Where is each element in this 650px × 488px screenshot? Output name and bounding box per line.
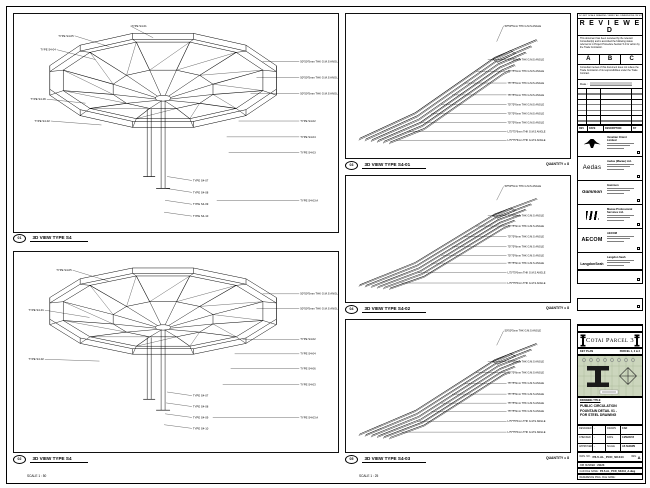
description-col: DESCRIPTION <box>604 126 632 131</box>
consultant-row: AedasAedas (Macau) Ltd. <box>578 157 642 181</box>
svg-text:TYPE S4-09: TYPE S4-09 <box>193 416 209 420</box>
view-number-bubble: 01 <box>13 234 26 243</box>
consultant-info: Aedas (Macau) Ltd. <box>607 160 636 170</box>
svg-text:TYPE S4-07: TYPE S4-07 <box>193 178 209 182</box>
svg-text:L75*75*6mm THK G.M.S ANGLE: L75*75*6mm THK G.M.S ANGLE <box>508 129 546 133</box>
consultant-row: GammonGammon <box>578 181 642 205</box>
view-number-bubble: 03 <box>345 161 358 170</box>
svg-text:TYPE S4-03 A: TYPE S4-03 A <box>300 198 318 202</box>
mps-logo-icon <box>579 207 605 224</box>
revision-table-header: REV DATE DESCRIPTION BY <box>577 125 643 132</box>
svg-text:TYPE S4-09: TYPE S4-09 <box>193 202 209 206</box>
consultant-name: Venetian Orient Limited <box>607 136 636 142</box>
svg-text:75*75*6mm THK G.M.S ANGLE: 75*75*6mm THK G.M.S ANGLE <box>508 361 545 364</box>
svg-text:TYPE S4-06: TYPE S4-06 <box>300 366 316 370</box>
consultant-row: Venetian Orient Limited <box>578 133 642 157</box>
approved-value: - <box>593 444 606 452</box>
job-number-value: 21123 <box>597 464 604 467</box>
venetian-logo-icon <box>579 135 605 152</box>
review-stamp: DO NOT SCALE DRAWING. VERIFY ALL DIMENSI… <box>577 13 643 125</box>
tube-structure <box>359 198 537 289</box>
tube-structure <box>359 344 537 440</box>
svg-text:TYPE S4-03: TYPE S4-03 <box>300 383 316 387</box>
consultant-name: Macau Professional Services Ltd. <box>607 208 636 214</box>
svg-text:TYPE S4-07: TYPE S4-07 <box>193 394 209 398</box>
view-scale: SCALE 1 : 25 <box>359 474 571 478</box>
key-plan-map <box>577 355 643 397</box>
scale-label: SCALE <box>606 444 621 452</box>
view-title: 3D VIEW TYPE S4-03 <box>362 455 426 463</box>
svg-text:75*75*6mm THK G.M.S ANGLE: 75*75*6mm THK G.M.S ANGLE <box>508 112 545 116</box>
svg-text:75*75*6mm THK G.M.S ANGLE: 75*75*6mm THK G.M.S ANGLE <box>508 382 545 385</box>
address-line <box>607 262 630 263</box>
svg-text:TYPE S4-03 A: TYPE S4-03 A <box>300 416 318 420</box>
project-title-band: PROJECT TITLE <box>577 325 643 332</box>
address-line <box>607 236 634 237</box>
svg-text:TYPE S4-02: TYPE S4-02 <box>300 337 316 341</box>
svg-text:75*75*6mm THK G.M.S ANGLE: 75*75*6mm THK G.M.S ANGLE <box>508 57 545 61</box>
address-line <box>607 215 634 216</box>
key-plan-label: KEY PLAN <box>580 350 593 353</box>
status-option-b: B <box>600 55 622 64</box>
project-name: Cotai Parcel 3 <box>586 337 634 344</box>
svg-text:75*75*6mm THK G.M.S ANGLE: 75*75*6mm THK G.M.S ANGLE <box>508 69 545 73</box>
svg-text:L75*75*6mm THK G.M.S ANGLE: L75*75*6mm THK G.M.S ANGLE <box>508 431 546 434</box>
status-checkbox <box>637 175 641 179</box>
rev-col: REV <box>578 126 588 131</box>
svg-text:TYPE S4-10: TYPE S4-10 <box>193 214 209 218</box>
status-checkbox <box>637 151 641 155</box>
consultant-info: Langdon Seah <box>607 256 636 266</box>
consultant-row: Macau Professional Services Ltd. <box>578 205 642 229</box>
consultant-row: LangdonSeahLangdon Seah <box>578 253 642 270</box>
view-panel-mid-bottom: 50*50*5mm THK G.M.S ANGLE75*75*6mm THK G… <box>345 319 571 453</box>
date-value: 14/MAR/15 <box>621 435 642 444</box>
view-number-bubble: 04 <box>345 305 358 314</box>
quantity-note: QUANTITY = 8 <box>546 162 569 166</box>
view-label-mid-middle: 04 3D VIEW TYPE S4-02 QUANTITY = 8 SCALE… <box>345 305 571 319</box>
consultant-row: AECOMAECOM <box>578 229 642 253</box>
view-panel-left-top: TYPE S4-01TYPE S4-05TYPE S4-04TYPE S4-06… <box>13 13 339 233</box>
key-plan-header: KEY PLAN PARCEL 1, 2 & 3 <box>577 348 643 355</box>
stamp-disclaimer-text: Consultant review of this document does … <box>578 65 642 80</box>
date-fill-line <box>590 82 632 86</box>
drawing-info-table: DESIGNED - DRAWN CAD CHECKED - DATE 14/M… <box>577 425 643 452</box>
svg-text:TYPE S4-01: TYPE S4-01 <box>131 24 147 28</box>
angle-assembly-drawing: 50*50*5mm THK G.M.S ANGLE75*75*6mm THK G… <box>346 320 570 452</box>
drawing-number-row: DWG. NO. P3-5-AL_PCD_SK444 REV. A <box>577 452 643 462</box>
consultant-row-empty <box>577 270 643 284</box>
checked-label: CHECKED <box>578 435 593 444</box>
dwg-no-value: P3-5-AL_PCD_SK444 <box>592 455 631 459</box>
sheet-border: TYPE S4-01TYPE S4-05TYPE S4-04TYPE S4-06… <box>6 6 646 484</box>
consultant-info: Venetian Orient Limited <box>607 136 636 149</box>
address-line <box>607 190 630 191</box>
cad-file-label: CAD FILE NAME : <box>580 470 600 473</box>
by-col: BY <box>632 126 642 131</box>
annotation-layer: 50*50*5mm THK G.M.S ANGLE75*75*6mm THK G… <box>397 24 546 142</box>
status-checkbox <box>637 305 641 309</box>
status-checkbox <box>637 278 641 282</box>
address-line <box>607 220 624 221</box>
address-line <box>607 169 624 170</box>
quantity-note: QUANTITY = 8 <box>546 456 569 460</box>
address-line <box>607 145 630 146</box>
approved-label: APPROVED <box>578 444 593 452</box>
cad-file-value: P3-5-AL_PCD_SK444_A.dwg <box>600 470 635 473</box>
drawn-value: CAD <box>621 426 642 435</box>
svg-text:TYPE S4-04: TYPE S4-04 <box>300 135 316 139</box>
svg-text:75*75*6mm THK G.M.S ANGLE: 75*75*6mm THK G.M.S ANGLE <box>508 225 545 228</box>
consultant-name: AECOM <box>607 232 636 235</box>
view-number-bubble: 05 <box>345 455 358 464</box>
svg-text:TYPE S4-03: TYPE S4-03 <box>300 151 316 155</box>
view-title: 3D VIEW TYPE S4-01 <box>362 161 426 169</box>
svg-text:75*75*6mm THK G.M.S ANGLE: 75*75*6mm THK G.M.S ANGLE <box>508 371 545 374</box>
date-col: DATE <box>588 126 604 131</box>
svg-text:75*75*6mm THK G.M.S ANGLE: 75*75*6mm THK G.M.S ANGLE <box>508 215 545 218</box>
address-line <box>607 164 634 165</box>
angle-assembly-drawing: 50*50*5mm THK G.M.S ANGLE75*75*6mm THK G… <box>346 176 570 302</box>
dwg-no-label: DWG. NO. <box>580 456 591 458</box>
svg-text:75*75*6mm THK G.M.S ANGLE: 75*75*6mm THK G.M.S ANGLE <box>508 103 545 107</box>
svg-text:L75*75*6mm THK G.M.S ANGLE: L75*75*6mm THK G.M.S ANGLE <box>508 272 546 275</box>
annotation-layer: 50*50*5mm THK G.M.S ANGLE75*75*6mm THK G… <box>402 185 546 284</box>
svg-text:L75*75*6mm THK G.M.S ANGLE: L75*75*6mm THK G.M.S ANGLE <box>508 138 546 142</box>
view-label-mid-top: 03 3D VIEW TYPE S4-01 QUANTITY = 8 SCALE… <box>345 161 571 175</box>
consultant-info: AECOM <box>607 232 636 242</box>
svg-text:TYPE S4-04: TYPE S4-04 <box>300 352 316 356</box>
view-label-left-top: 01 3D VIEW TYPE S4 SCALE 1 : 50 <box>13 234 339 248</box>
svg-text:L75*75*6mm THK G.M.S ANGLE: L75*75*6mm THK G.M.S ANGLE <box>508 420 546 423</box>
address-line <box>607 148 624 149</box>
svg-text:TYPE S4-08: TYPE S4-08 <box>193 405 209 409</box>
svg-text:75*75*6mm THK G.M.S ANGLE: 75*75*6mm THK G.M.S ANGLE <box>508 393 545 396</box>
drawing-title-block: DRAWING TITLE PUBLIC CIRCULATION FOUNTAI… <box>577 397 643 425</box>
svg-text:TYPE S4-08: TYPE S4-08 <box>193 190 209 194</box>
scale-value: AS SHOWN <box>621 444 642 452</box>
consultant-name: Langdon Seah <box>607 256 636 259</box>
canopy-structure <box>50 268 277 410</box>
job-number-label: JOB NUMBER : <box>580 464 597 467</box>
consultant-name: Gammon <box>607 184 636 187</box>
svg-text:50*50*5mm THK G.M.S ANGLE: 50*50*5mm THK G.M.S ANGLE <box>505 330 542 333</box>
address-line <box>607 260 634 261</box>
status-checkbox <box>637 199 641 203</box>
address-line <box>607 188 634 189</box>
svg-text:TYPE S4-02: TYPE S4-02 <box>300 119 316 123</box>
svg-text:TYPE S4-05: TYPE S4-05 <box>56 268 72 272</box>
svg-text:75*75*6mm THK G.M.S ANGLE: 75*75*6mm THK G.M.S ANGLE <box>508 81 545 85</box>
key-plan-drawing <box>578 356 642 396</box>
status-option-c: C <box>621 55 642 64</box>
checked-value: - <box>593 435 606 444</box>
svg-text:75*75*6mm THK G.M.S ANGLE: 75*75*6mm THK G.M.S ANGLE <box>508 402 545 405</box>
angle-assembly-drawing: 50*50*5mm THK G.M.S ANGLE75*75*6mm THK G… <box>346 14 570 158</box>
status-checkbox <box>637 247 641 251</box>
svg-text:50*50*5mm THK G.M.S ANGLE: 50*50*5mm THK G.M.S ANGLE <box>505 24 542 28</box>
annotation-layer: 50*50*5mm THK G.M.S ANGLE75*75*6mm THK G… <box>402 330 546 434</box>
rev-label: REV. <box>631 456 636 458</box>
consultant-info: Gammon <box>607 184 636 194</box>
svg-text:TYPE S4-02: TYPE S4-02 <box>28 357 44 361</box>
view-title: 3D VIEW TYPE S4 <box>30 234 87 242</box>
view-label-left-bottom: 02 3D VIEW TYPE S4 SCALE 1 : 50 <box>13 455 339 469</box>
svg-text:50*50*5mm THK G.M.S ANGLE: 50*50*5mm THK G.M.S ANGLE <box>300 292 338 296</box>
annotation-layer: TYPE S4-05TYPE S4-01TYPE S4-0250*50*5mm … <box>28 268 338 430</box>
svg-text:50*50*5mm THK G.M.S ANGLE: 50*50*5mm THK G.M.S ANGLE <box>300 75 338 79</box>
svg-text:TYPE S4-02: TYPE S4-02 <box>34 119 50 123</box>
address-line <box>607 166 630 167</box>
svg-text:75*75*6mm THK G.M.S ANGLE: 75*75*6mm THK G.M.S ANGLE <box>508 254 545 257</box>
project-title-block: Cotai Parcel 3 <box>577 332 643 348</box>
svg-text:75*75*6mm THK G.M.S ANGLE: 75*75*6mm THK G.M.S ANGLE <box>508 246 545 249</box>
svg-text:50*50*5mm THK G.M.S ANGLE: 50*50*5mm THK G.M.S ANGLE <box>505 185 542 188</box>
svg-text:L75*75*6mm THK G.M.S ANGLE: L75*75*6mm THK G.M.S ANGLE <box>508 282 546 285</box>
key-plan-parcel: PARCEL 1, 2 & 3 <box>620 350 640 353</box>
svg-text:TYPE S4-10: TYPE S4-10 <box>193 426 209 430</box>
gammon-logo: Gammon <box>579 183 605 200</box>
langdon-seah-logo: LangdonSeah <box>579 255 605 270</box>
drawn-label: DRAWN <box>606 426 621 435</box>
view-panel-mid-middle: 50*50*5mm THK G.M.S ANGLE75*75*6mm THK G… <box>345 175 571 303</box>
address-line <box>607 265 624 266</box>
drawing-title-line: FOR STEEL DRAWING <box>580 413 640 418</box>
rev-value: A <box>638 455 641 460</box>
svg-text:75*75*6mm THK G.M.S ANGLE: 75*75*6mm THK G.M.S ANGLE <box>508 120 545 124</box>
designed-value: - <box>593 426 606 435</box>
svg-text:TYPE S4-05: TYPE S4-05 <box>58 34 74 38</box>
revision-rows-empty <box>578 89 642 124</box>
reference-dwg-row: REFERENCE DWG. FILE NAME : <box>577 474 643 480</box>
annotation-layer: TYPE S4-01TYPE S4-05TYPE S4-04TYPE S4-06… <box>30 24 338 218</box>
consultant-name: Aedas (Macau) Ltd. <box>607 160 636 163</box>
svg-text:TYPE S4-06: TYPE S4-06 <box>30 97 46 101</box>
view-scale: SCALE 1 : 50 <box>27 474 339 478</box>
status-options: A B C <box>578 55 642 65</box>
svg-text:50*50*5mm THK G.M.S ANGLE: 50*50*5mm THK G.M.S ANGLE <box>300 60 338 64</box>
drawing-title-label: DRAWING TITLE <box>580 399 640 402</box>
svg-text:75*75*6mm THK G.M.S ANGLE: 75*75*6mm THK G.M.S ANGLE <box>508 235 545 238</box>
svg-text:50*50*5mm THK G.M.S ANGLE: 50*50*5mm THK G.M.S ANGLE <box>300 306 338 310</box>
pillar-ornament-icon <box>634 334 640 347</box>
address-line <box>607 238 630 239</box>
svg-text:75*75*6mm THK G.M.S ANGLE: 75*75*6mm THK G.M.S ANGLE <box>508 93 545 97</box>
aedas-logo: Aedas <box>579 159 605 176</box>
address-line <box>607 143 634 144</box>
status-checkbox <box>637 223 641 227</box>
engineering-drawing-sheet: { "stamp": { "note": "DO NOT SCALE DRAWI… <box>0 0 650 488</box>
view-number-bubble: 02 <box>13 455 26 464</box>
consultant-row-empty <box>577 298 643 311</box>
consultant-list: Venetian Orient LimitedAedasAedas (Macau… <box>577 132 643 270</box>
stamp-date-row: Date : <box>578 80 642 89</box>
canopy-3d-view-drawing: TYPE S4-01TYPE S4-05TYPE S4-04TYPE S4-06… <box>14 14 338 232</box>
svg-text:TYPE S4-01: TYPE S4-01 <box>28 308 44 312</box>
quantity-note: QUANTITY = 8 <box>546 306 569 310</box>
reference-dwg-label: REFERENCE DWG. FILE NAME : <box>580 476 617 479</box>
view-panel-mid-top: 50*50*5mm THK G.M.S ANGLE75*75*6mm THK G… <box>345 13 571 159</box>
reviewed-title: R E V I E W E D <box>578 19 642 36</box>
address-line <box>607 217 630 218</box>
status-option-a: A <box>578 55 600 64</box>
aecom-logo: AECOM <box>579 231 605 248</box>
date-label: DATE <box>606 435 621 444</box>
address-line <box>607 241 624 242</box>
svg-text:75*75*6mm THK G.M.S ANGLE: 75*75*6mm THK G.M.S ANGLE <box>508 262 545 265</box>
tube-structure <box>359 40 537 144</box>
designed-label: DESIGNED <box>578 426 593 435</box>
consultant-info: Macau Professional Services Ltd. <box>607 208 636 221</box>
svg-text:50*50*5mm THK G.M.S ANGLE: 50*50*5mm THK G.M.S ANGLE <box>300 91 338 95</box>
canopy-3d-view-drawing: TYPE S4-05TYPE S4-01TYPE S4-0250*50*5mm … <box>14 252 338 452</box>
address-line <box>607 193 624 194</box>
svg-text:75*75*6mm THK G.M.S ANGLE: 75*75*6mm THK G.M.S ANGLE <box>508 410 545 413</box>
view-title: 3D VIEW TYPE S4 <box>30 455 87 463</box>
view-label-mid-bottom: 05 3D VIEW TYPE S4-03 QUANTITY = 8 SCALE… <box>345 455 571 469</box>
view-panel-left-bottom: TYPE S4-05TYPE S4-01TYPE S4-0250*50*5mm … <box>13 251 339 453</box>
date-label: Date : <box>580 82 588 86</box>
svg-text:TYPE S4-04: TYPE S4-04 <box>40 48 56 52</box>
view-title: 3D VIEW TYPE S4-02 <box>362 305 426 313</box>
stamp-body-text: This document has been reviewed by the r… <box>578 36 642 55</box>
